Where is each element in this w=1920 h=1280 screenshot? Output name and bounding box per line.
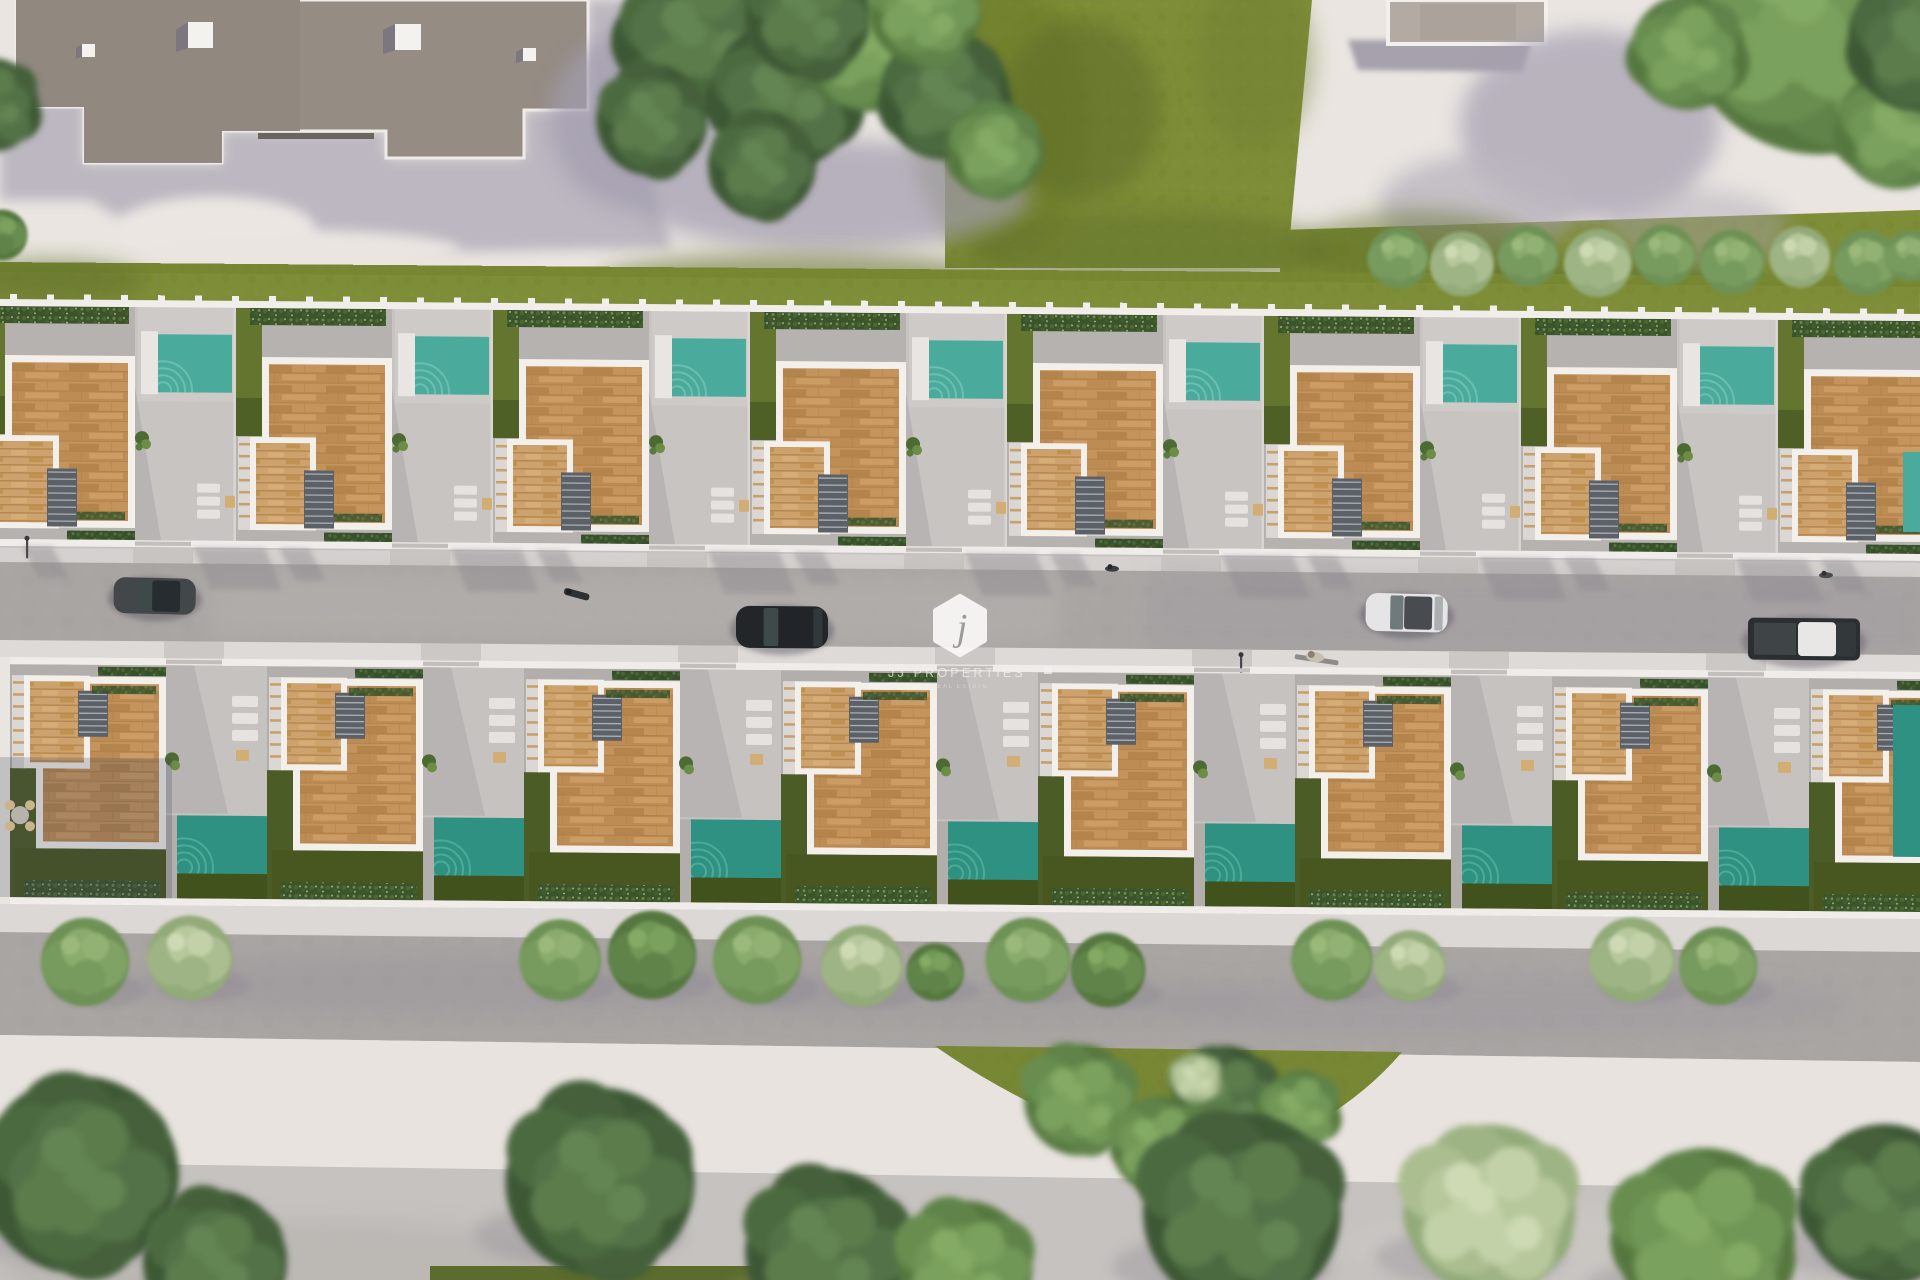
svg-text:JJ PROPERTIES: JJ PROPERTIES [888, 666, 1026, 680]
svg-text:REAL ESTATE: REAL ESTATE [931, 684, 988, 690]
